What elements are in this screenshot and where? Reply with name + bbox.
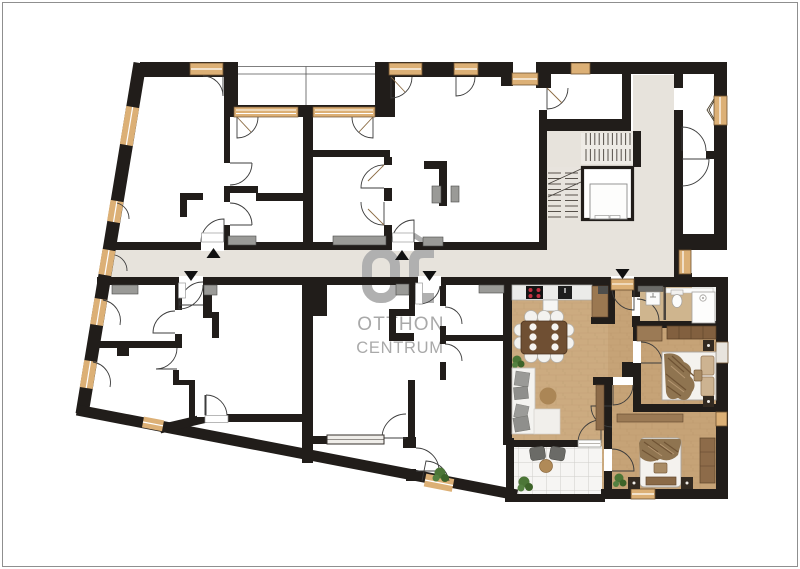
svg-text:CENTRUM: CENTRUM (356, 339, 443, 357)
svg-text:OTTHON: OTTHON (357, 314, 444, 335)
